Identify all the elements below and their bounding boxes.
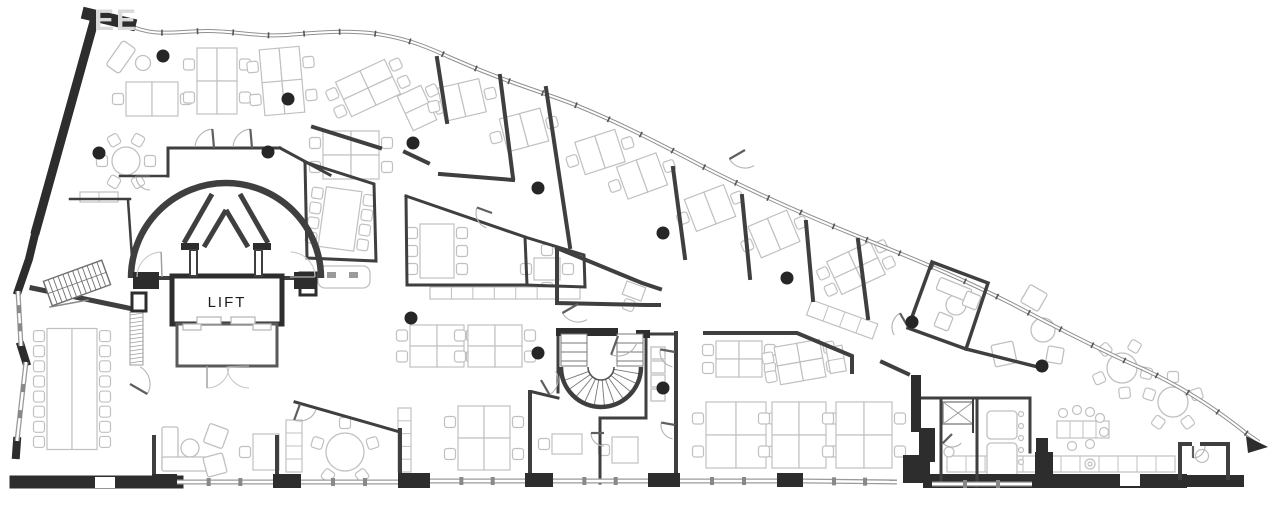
lift-label: LIFT: [208, 294, 247, 311]
fixture: [944, 447, 954, 457]
door-swing: [207, 367, 229, 388]
chair: [608, 179, 622, 193]
chair: [34, 376, 45, 387]
window-mullion: [238, 478, 242, 486]
chair: [382, 162, 393, 173]
structural-column: [532, 347, 545, 360]
structural-column: [657, 227, 670, 240]
chair: [100, 376, 111, 387]
desk: [552, 434, 582, 454]
window-mullion: [363, 478, 367, 486]
wall-pier: [911, 375, 921, 432]
chair: [113, 94, 124, 105]
chair: [100, 361, 111, 372]
door-jamb: [253, 243, 271, 250]
window-mullion: [963, 480, 967, 488]
chair: [703, 345, 714, 356]
chair: [457, 264, 468, 275]
door-leaf: [255, 250, 262, 276]
window-mullion: [996, 480, 1000, 488]
arch-wall: [131, 183, 321, 278]
desk-cluster: [672, 180, 749, 236]
furniture-item: [1046, 346, 1065, 365]
desk: [410, 346, 437, 367]
desk: [217, 81, 237, 114]
desk-cluster: [599, 437, 639, 463]
desk-cluster: [34, 329, 111, 450]
arch-vestibule-wall: [184, 194, 212, 243]
exterior-wall: [16, 441, 17, 455]
desk: [484, 438, 510, 470]
desk: [495, 346, 522, 367]
chair: [240, 92, 251, 103]
chair: [145, 156, 156, 167]
stair-tread: [613, 372, 637, 383]
furniture-item: [987, 443, 1017, 477]
window-mullion: [18, 410, 22, 418]
desk-cluster: [759, 402, 840, 468]
interior-wall: [806, 222, 813, 300]
fixture: [1019, 436, 1024, 441]
desk: [262, 81, 285, 116]
chair: [388, 57, 403, 72]
chair: [340, 418, 351, 429]
chair: [565, 154, 579, 168]
fixture: [1086, 408, 1095, 417]
stair-tread: [563, 371, 588, 380]
chair: [1092, 371, 1107, 386]
desk: [495, 325, 522, 346]
furniture-item: [106, 40, 136, 74]
door-leaf: [477, 208, 492, 213]
chair: [1127, 339, 1142, 354]
chair: [100, 406, 111, 417]
window-mullion: [17, 305, 21, 313]
shelf-hatch: [130, 312, 143, 365]
chair: [693, 446, 704, 457]
desk: [279, 46, 302, 81]
door-swing: [729, 159, 754, 168]
desk: [864, 402, 892, 435]
chair: [525, 330, 536, 341]
furniture-item: [1020, 284, 1047, 311]
chair: [693, 413, 704, 424]
desk: [706, 435, 736, 468]
chair: [309, 202, 321, 214]
chair: [427, 100, 440, 113]
round-table: [97, 133, 156, 190]
structural-column: [93, 147, 106, 160]
chair: [407, 228, 418, 239]
round-table: [1142, 372, 1203, 430]
structural-column: [532, 182, 545, 195]
desk-cluster: [323, 54, 412, 123]
window-band-inner: [17, 362, 26, 441]
desk: [410, 325, 437, 346]
desk: [197, 81, 217, 114]
door-leaf: [212, 129, 214, 148]
desk: [716, 359, 739, 377]
desk: [197, 48, 217, 81]
structural-column: [407, 137, 420, 150]
fixture: [1196, 450, 1209, 463]
chair: [445, 449, 456, 460]
window-mullion: [832, 477, 836, 485]
desk: [777, 362, 803, 385]
chair: [1151, 415, 1166, 430]
counter: [947, 456, 1175, 472]
chair: [761, 352, 774, 365]
lift-door: [253, 324, 271, 330]
window-mullion: [491, 477, 495, 485]
fan-stair: [561, 334, 643, 407]
round-table: [181, 439, 199, 457]
desk-cluster: [184, 48, 251, 114]
chair: [759, 413, 770, 424]
desk-cluster: [445, 406, 524, 470]
fixture: [1019, 412, 1024, 417]
chair: [445, 417, 456, 428]
desk: [612, 437, 638, 463]
counter: [80, 192, 118, 202]
door-leaf: [729, 150, 745, 159]
fixture: [1096, 414, 1105, 423]
desk-cluster: [823, 402, 906, 468]
door-leaf: [661, 423, 675, 425]
desk: [47, 329, 72, 450]
desk: [864, 435, 892, 468]
door-swing: [233, 129, 250, 147]
interior-wall: [742, 196, 750, 278]
window-mullion: [18, 323, 22, 331]
desk: [420, 224, 454, 278]
chair: [881, 255, 896, 270]
wall-opening: [95, 477, 115, 488]
chair: [455, 351, 466, 362]
structural-column: [282, 93, 295, 106]
wall-pier: [648, 473, 680, 487]
desk: [351, 155, 379, 179]
desk-cluster: [240, 434, 280, 470]
chair: [513, 449, 524, 460]
structural-column: [906, 316, 919, 329]
stair-tread: [614, 369, 641, 374]
chair: [366, 436, 380, 450]
furniture-item: [987, 411, 1017, 439]
wall-stub: [294, 272, 315, 289]
chair: [34, 391, 45, 402]
exterior-wall: [21, 346, 26, 362]
structural-column: [1036, 360, 1049, 373]
interior-wall: [546, 88, 570, 247]
chair: [333, 104, 348, 119]
desk-cluster: [539, 434, 583, 454]
door-leaf: [541, 380, 550, 395]
desk: [836, 435, 864, 468]
stair-tread: [568, 374, 590, 389]
chair: [100, 331, 111, 342]
chair: [489, 131, 502, 144]
chair: [425, 83, 440, 98]
chair: [247, 61, 259, 73]
chair: [361, 209, 373, 221]
fixture: [1073, 406, 1082, 415]
wall-pier: [919, 428, 935, 462]
table-top: [136, 56, 151, 71]
desk-cluster: [618, 281, 646, 314]
chair: [325, 87, 340, 102]
counter: [286, 420, 302, 472]
interior-wall: [405, 152, 428, 163]
chair: [356, 239, 368, 251]
desk: [739, 341, 762, 359]
chair: [823, 282, 838, 297]
chair: [130, 133, 145, 148]
door-swing: [195, 129, 212, 147]
chair: [302, 56, 314, 68]
chair: [397, 330, 408, 341]
chair: [34, 421, 45, 432]
desk: [259, 48, 282, 83]
chair: [184, 59, 195, 70]
chair: [484, 87, 497, 100]
chair: [310, 436, 324, 450]
window-mullion: [21, 384, 25, 392]
stair-tread: [605, 379, 614, 404]
desk: [739, 359, 762, 377]
door-jamb: [181, 243, 199, 250]
door-leaf: [294, 404, 300, 420]
chair: [621, 136, 635, 150]
chair: [823, 413, 834, 424]
window-mullion: [331, 478, 335, 486]
equipment: [349, 272, 358, 278]
arch-vestibule-wall: [204, 210, 226, 247]
wall-pier: [777, 473, 803, 487]
furniture-item: [991, 341, 1017, 367]
chair: [703, 363, 714, 374]
desk: [458, 406, 484, 438]
structural-column: [405, 312, 418, 325]
shower-tray: [943, 402, 973, 424]
chair: [457, 228, 468, 239]
desk: [468, 325, 495, 346]
window-mullion: [863, 478, 867, 486]
door-leaf: [250, 129, 252, 148]
chair: [823, 446, 834, 457]
window-mullion: [207, 478, 211, 486]
wall-opening: [1120, 474, 1140, 486]
chair: [1180, 415, 1195, 430]
lift-door: [183, 324, 201, 330]
stair-tread: [594, 380, 599, 407]
table-top: [181, 439, 199, 457]
chair: [759, 446, 770, 457]
door-leaf: [227, 366, 249, 367]
furniture-item: [203, 423, 229, 449]
chair: [397, 351, 408, 362]
wall-pier: [152, 474, 177, 488]
stair-tread: [584, 379, 595, 403]
wall-pier: [398, 473, 430, 488]
chair: [358, 224, 370, 236]
chair: [539, 439, 550, 450]
desk: [458, 438, 484, 470]
desk: [126, 82, 152, 116]
arch-vestibule-wall: [226, 210, 248, 247]
window-mullion: [742, 477, 746, 485]
desk: [152, 82, 178, 116]
chair: [563, 264, 574, 275]
structural-column: [657, 382, 670, 395]
window-mullion: [459, 477, 463, 485]
structural-column: [262, 146, 275, 159]
door-leaf: [130, 384, 147, 394]
furniture-item: [318, 266, 370, 288]
desk: [318, 187, 362, 251]
desk: [72, 329, 97, 450]
wall-pier: [273, 474, 301, 488]
desk: [772, 435, 799, 468]
furniture-item: [203, 453, 227, 477]
service-shaft: [132, 293, 146, 311]
round-table: [136, 56, 151, 71]
chair: [455, 330, 466, 341]
door-leaf: [161, 252, 162, 277]
window-mullion: [614, 477, 618, 485]
desk-cluster: [407, 224, 468, 278]
door-swing: [562, 313, 587, 322]
chair: [100, 436, 111, 447]
table-top: [326, 433, 364, 471]
interior-wall: [882, 362, 908, 374]
door-leaf: [190, 250, 197, 276]
fixture: [1088, 462, 1092, 466]
wall-pier: [1036, 438, 1048, 482]
furniture-item: [651, 361, 665, 373]
equipment: [327, 272, 336, 278]
door-swing: [227, 367, 249, 388]
desk: [836, 402, 864, 435]
chair: [457, 246, 468, 257]
lift-door: [197, 317, 221, 324]
stair-tread: [575, 377, 592, 398]
chair: [34, 346, 45, 357]
chair: [250, 94, 262, 106]
stair-tread: [608, 378, 623, 400]
furniture-item: [934, 312, 954, 332]
watermark-text: EE: [94, 4, 138, 37]
chair: [765, 370, 778, 383]
chair: [1142, 387, 1156, 401]
fixture: [1019, 460, 1024, 465]
chair: [34, 406, 45, 417]
fixture: [1059, 409, 1068, 418]
desk: [716, 341, 739, 359]
desk: [468, 346, 495, 367]
chair: [100, 346, 111, 357]
chair: [895, 413, 906, 424]
chair: [34, 361, 45, 372]
door-leaf: [562, 304, 578, 313]
office-floor-plan: EE LIFT: [0, 0, 1280, 512]
fixture: [1019, 424, 1024, 429]
floor-plan-page: EE LIFT: [0, 0, 1280, 512]
chair: [1119, 387, 1131, 399]
chair: [184, 92, 195, 103]
fixture: [1019, 448, 1024, 453]
stair-tread: [611, 375, 632, 392]
chair: [100, 391, 111, 402]
exterior-wall: [18, 230, 36, 291]
door-swing: [943, 443, 961, 447]
door-swing: [892, 313, 900, 335]
fixture: [1086, 440, 1095, 449]
chair: [513, 417, 524, 428]
window-band-inner: [803, 481, 897, 482]
fixture: [1100, 428, 1109, 437]
interior-wall: [440, 174, 513, 180]
desk-cluster: [246, 45, 318, 117]
round-table: [310, 418, 379, 484]
chair: [34, 436, 45, 447]
lift-door: [231, 317, 255, 324]
desk: [706, 402, 736, 435]
desk: [217, 48, 237, 81]
arch-vestibule-wall: [240, 194, 268, 243]
chair: [240, 447, 251, 458]
structural-column: [157, 50, 170, 63]
table-top: [112, 147, 140, 175]
chair: [396, 75, 411, 90]
fixture: [1068, 442, 1077, 451]
chair: [382, 138, 393, 149]
desk: [772, 402, 799, 435]
structural-column: [781, 272, 794, 285]
chair: [100, 421, 111, 432]
wall-pier: [525, 473, 553, 487]
desk: [800, 358, 826, 381]
desk-cluster: [693, 402, 780, 468]
interior-wall: [533, 392, 558, 398]
desk-cluster: [113, 82, 192, 116]
stair-tread: [602, 380, 604, 407]
window-mullion: [710, 477, 714, 485]
chair: [34, 331, 45, 342]
chair: [305, 89, 317, 101]
window-mullion: [582, 477, 586, 485]
desk: [484, 406, 510, 438]
chair: [106, 133, 121, 148]
chair: [310, 138, 321, 149]
chair: [816, 266, 831, 281]
chair: [311, 187, 323, 199]
door-leaf: [943, 434, 952, 443]
